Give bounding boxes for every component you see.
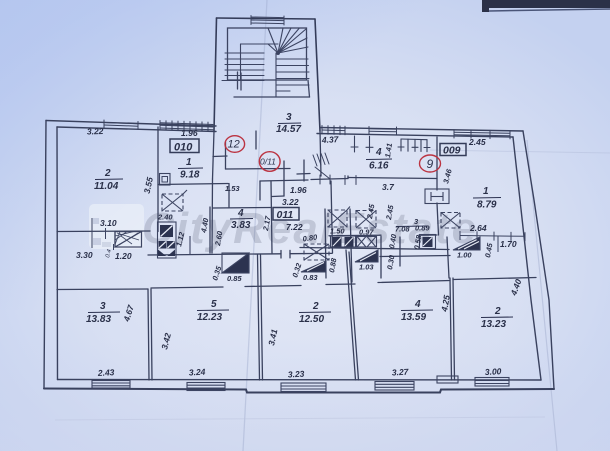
- svg-text:12: 12: [228, 139, 240, 151]
- svg-text:4: 4: [414, 299, 421, 310]
- svg-text:2.64: 2.64: [469, 223, 487, 233]
- svg-text:3.22: 3.22: [282, 197, 299, 207]
- svg-text:1.00: 1.00: [457, 251, 472, 260]
- svg-text:13.23: 13.23: [481, 319, 506, 330]
- svg-text:5: 5: [211, 299, 217, 310]
- svg-text:12.50: 12.50: [299, 314, 324, 325]
- svg-text:2: 2: [104, 168, 111, 179]
- svg-text:3.10: 3.10: [100, 218, 117, 228]
- svg-text:4: 4: [375, 147, 382, 158]
- svg-text:1.53: 1.53: [225, 184, 240, 193]
- svg-text:0.89: 0.89: [415, 224, 430, 233]
- svg-text:4.37: 4.37: [321, 134, 340, 145]
- svg-text:1.70: 1.70: [500, 239, 517, 249]
- svg-text:3.83: 3.83: [231, 220, 251, 231]
- svg-text:0.97: 0.97: [359, 228, 374, 237]
- svg-text:0.83: 0.83: [303, 273, 318, 282]
- svg-text:12.23: 12.23: [197, 312, 222, 323]
- svg-text:13.83: 13.83: [86, 314, 111, 325]
- svg-text:1.03: 1.03: [359, 263, 374, 272]
- svg-text:3.7: 3.7: [382, 182, 395, 192]
- svg-text:3.22: 3.22: [87, 126, 104, 137]
- svg-text:9.18: 9.18: [180, 170, 200, 181]
- svg-text:7.22: 7.22: [286, 222, 303, 232]
- svg-text:3.30: 3.30: [76, 250, 93, 260]
- svg-text:0.85: 0.85: [227, 274, 242, 283]
- svg-text:011: 011: [277, 209, 294, 221]
- svg-text:2: 2: [312, 301, 319, 312]
- svg-text:4: 4: [237, 208, 244, 219]
- svg-text:6.16: 6.16: [369, 161, 389, 172]
- svg-text:8.79: 8.79: [477, 200, 497, 211]
- svg-text:1.20: 1.20: [115, 251, 132, 261]
- svg-text:2.40: 2.40: [157, 213, 173, 222]
- svg-text:3: 3: [100, 301, 106, 312]
- svg-text:3.23: 3.23: [288, 369, 305, 380]
- svg-text:11.04: 11.04: [94, 181, 119, 192]
- svg-text:14.57: 14.57: [276, 124, 301, 135]
- svg-text:2.45: 2.45: [468, 137, 486, 147]
- svg-text:3.27: 3.27: [392, 367, 410, 378]
- svg-text:7.08: 7.08: [395, 225, 410, 234]
- svg-text:1: 1: [186, 157, 192, 168]
- svg-text:9: 9: [427, 157, 434, 171]
- svg-text:1.50: 1.50: [330, 227, 345, 236]
- svg-text:13.59: 13.59: [401, 312, 426, 323]
- svg-text:3: 3: [286, 112, 292, 123]
- svg-text:3.00: 3.00: [485, 366, 502, 377]
- svg-text:1.96: 1.96: [181, 128, 198, 138]
- svg-text:010: 010: [174, 142, 193, 154]
- svg-text:0/11: 0/11: [260, 157, 276, 167]
- svg-text:3.24: 3.24: [189, 367, 206, 378]
- svg-text:2.43: 2.43: [97, 367, 115, 378]
- svg-text:1: 1: [483, 186, 489, 197]
- svg-text:2: 2: [494, 306, 501, 317]
- svg-text:009: 009: [443, 145, 461, 157]
- svg-text:1.96: 1.96: [290, 185, 307, 195]
